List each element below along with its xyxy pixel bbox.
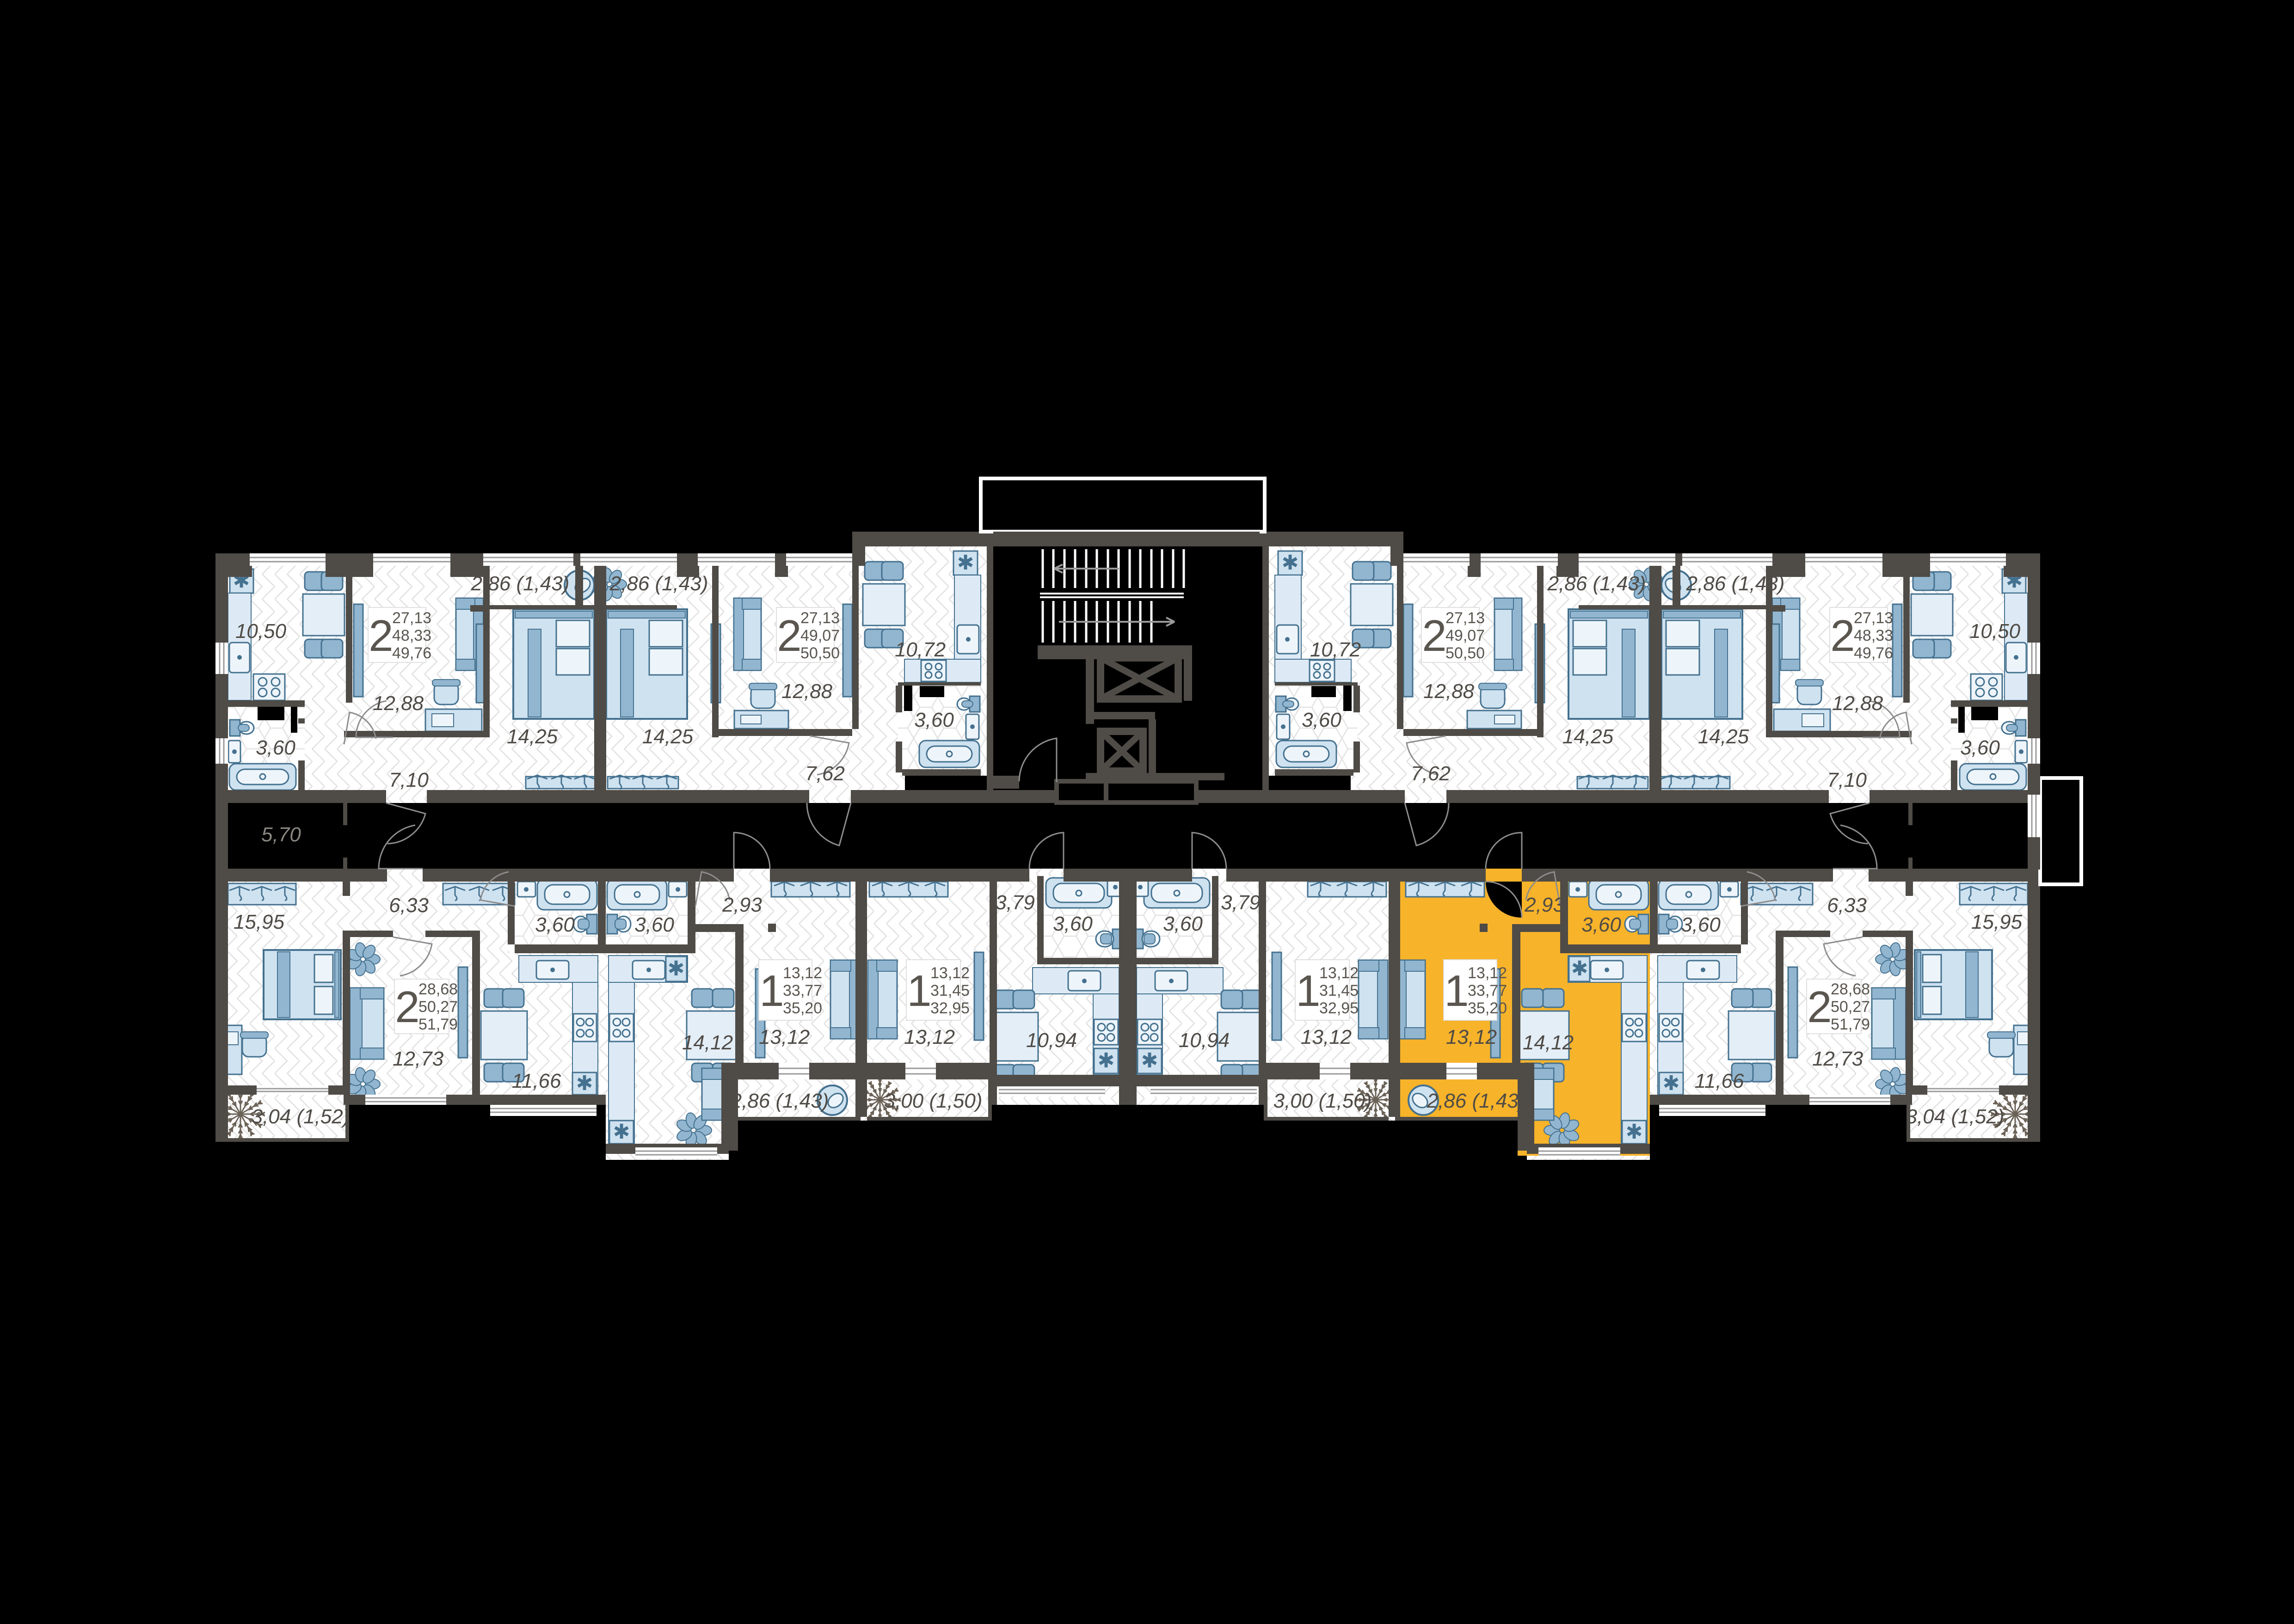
svg-text:2,86 (1,43): 2,86 (1,43) xyxy=(1547,572,1646,595)
svg-text:27,13: 27,13 xyxy=(800,609,840,627)
svg-text:27,13: 27,13 xyxy=(1854,609,1893,627)
svg-text:28,68: 28,68 xyxy=(418,981,458,998)
svg-text:3,60: 3,60 xyxy=(256,736,295,759)
svg-text:✱: ✱ xyxy=(1282,552,1299,574)
svg-text:49,07: 49,07 xyxy=(1445,627,1485,644)
svg-text:35,20: 35,20 xyxy=(783,999,822,1017)
svg-text:48,33: 48,33 xyxy=(392,627,431,644)
svg-text:2,86 (1,43): 2,86 (1,43) xyxy=(1427,1090,1525,1112)
svg-text:50,27: 50,27 xyxy=(418,998,458,1016)
svg-text:51,79: 51,79 xyxy=(1831,1016,1870,1033)
svg-text:12,73: 12,73 xyxy=(393,1048,444,1070)
svg-text:3,60: 3,60 xyxy=(1302,709,1341,731)
svg-text:11,66: 11,66 xyxy=(1695,1070,1744,1092)
svg-text:3,79: 3,79 xyxy=(995,891,1035,914)
svg-text:13,12: 13,12 xyxy=(1319,964,1359,982)
svg-text:7,62: 7,62 xyxy=(1411,762,1451,785)
svg-text:51,79: 51,79 xyxy=(418,1016,458,1033)
svg-text:13,12: 13,12 xyxy=(759,1026,810,1048)
svg-text:2,86 (1,43): 2,86 (1,43) xyxy=(1686,572,1785,595)
svg-text:2,86 (1,43): 2,86 (1,43) xyxy=(730,1090,829,1112)
svg-text:✱: ✱ xyxy=(1098,1049,1115,1072)
svg-text:49,07: 49,07 xyxy=(800,627,840,644)
svg-text:48,33: 48,33 xyxy=(1854,627,1893,644)
svg-text:3,60: 3,60 xyxy=(535,913,575,936)
svg-text:✱: ✱ xyxy=(668,957,685,980)
svg-text:✱: ✱ xyxy=(1571,957,1588,980)
svg-text:15,95: 15,95 xyxy=(234,911,285,933)
svg-text:7,10: 7,10 xyxy=(1827,769,1867,791)
svg-text:3,60: 3,60 xyxy=(1681,913,1721,936)
svg-text:3,60: 3,60 xyxy=(1960,736,2000,759)
svg-text:3,60: 3,60 xyxy=(1053,913,1093,935)
svg-text:10,72: 10,72 xyxy=(1310,638,1361,661)
svg-text:✱: ✱ xyxy=(1626,1121,1643,1143)
svg-text:2: 2 xyxy=(395,982,419,1032)
svg-text:12,88: 12,88 xyxy=(1832,692,1883,715)
svg-text:14,12: 14,12 xyxy=(682,1031,733,1054)
svg-text:✱: ✱ xyxy=(1141,1049,1158,1072)
svg-text:✱: ✱ xyxy=(613,1121,630,1143)
svg-text:2: 2 xyxy=(1807,982,1832,1032)
svg-text:10,50: 10,50 xyxy=(1969,620,2021,643)
svg-text:2,86 (1,43): 2,86 (1,43) xyxy=(471,572,570,595)
svg-text:13,12: 13,12 xyxy=(1468,964,1507,982)
svg-text:13,12: 13,12 xyxy=(783,964,822,982)
svg-text:✱: ✱ xyxy=(1663,1072,1680,1095)
svg-text:12,88: 12,88 xyxy=(373,692,424,715)
svg-text:3,04 (1,52): 3,04 (1,52) xyxy=(252,1105,350,1128)
svg-text:31,45: 31,45 xyxy=(930,982,970,999)
svg-text:13,12: 13,12 xyxy=(1301,1026,1352,1048)
svg-text:14,25: 14,25 xyxy=(642,725,694,748)
svg-text:6,33: 6,33 xyxy=(389,894,429,917)
svg-text:50,50: 50,50 xyxy=(1445,644,1485,662)
svg-text:5,70: 5,70 xyxy=(261,823,301,846)
svg-text:7,62: 7,62 xyxy=(805,762,845,785)
svg-text:2: 2 xyxy=(369,611,393,661)
svg-text:32,95: 32,95 xyxy=(930,999,970,1017)
svg-text:3,00 (1,50): 3,00 (1,50) xyxy=(884,1090,983,1112)
svg-text:33,77: 33,77 xyxy=(783,982,822,999)
svg-text:11,66: 11,66 xyxy=(512,1070,561,1092)
svg-text:6,33: 6,33 xyxy=(1827,894,1867,917)
svg-text:2: 2 xyxy=(1830,611,1855,661)
svg-text:✱: ✱ xyxy=(957,552,974,574)
svg-text:10,94: 10,94 xyxy=(1026,1029,1077,1052)
svg-text:2,93: 2,93 xyxy=(722,894,762,916)
svg-text:27,13: 27,13 xyxy=(1445,609,1485,627)
svg-text:12,88: 12,88 xyxy=(781,680,833,703)
svg-text:33,77: 33,77 xyxy=(1468,982,1507,999)
svg-text:3,04 (1,52): 3,04 (1,52) xyxy=(1906,1105,2005,1128)
svg-text:31,45: 31,45 xyxy=(1319,982,1359,999)
svg-text:1: 1 xyxy=(1444,966,1469,1016)
svg-text:27,13: 27,13 xyxy=(392,609,431,627)
svg-text:2,93: 2,93 xyxy=(1524,894,1564,916)
svg-text:50,27: 50,27 xyxy=(1831,998,1870,1016)
svg-text:2: 2 xyxy=(1422,611,1446,661)
svg-text:14,12: 14,12 xyxy=(1523,1031,1574,1054)
svg-text:2,86 (1,43): 2,86 (1,43) xyxy=(609,572,708,595)
svg-text:14,25: 14,25 xyxy=(1698,725,1749,748)
svg-text:1: 1 xyxy=(759,966,784,1016)
svg-text:3,60: 3,60 xyxy=(1581,913,1621,936)
svg-text:13,12: 13,12 xyxy=(930,964,970,982)
svg-text:32,95: 32,95 xyxy=(1319,999,1359,1017)
svg-text:50,50: 50,50 xyxy=(800,644,840,662)
svg-text:10,94: 10,94 xyxy=(1179,1029,1230,1052)
svg-text:12,88: 12,88 xyxy=(1423,680,1475,703)
svg-text:12,73: 12,73 xyxy=(1812,1048,1863,1070)
svg-text:10,72: 10,72 xyxy=(895,638,946,661)
svg-text:1: 1 xyxy=(907,966,931,1016)
svg-text:28,68: 28,68 xyxy=(1831,981,1870,998)
svg-text:7,10: 7,10 xyxy=(389,769,429,791)
svg-text:14,25: 14,25 xyxy=(507,725,558,748)
svg-text:49,76: 49,76 xyxy=(392,644,431,662)
svg-text:3,79: 3,79 xyxy=(1221,891,1261,914)
svg-text:3,60: 3,60 xyxy=(914,709,954,731)
svg-text:13,12: 13,12 xyxy=(1446,1026,1497,1048)
svg-text:2: 2 xyxy=(777,611,801,661)
svg-text:13,12: 13,12 xyxy=(904,1026,955,1048)
svg-text:✱: ✱ xyxy=(576,1072,593,1095)
svg-text:10,50: 10,50 xyxy=(235,620,287,643)
svg-text:3,60: 3,60 xyxy=(1163,913,1203,935)
svg-text:3,00 (1,50): 3,00 (1,50) xyxy=(1273,1090,1372,1112)
svg-text:1: 1 xyxy=(1296,966,1320,1016)
svg-text:3,60: 3,60 xyxy=(634,913,674,936)
svg-text:49,76: 49,76 xyxy=(1854,644,1893,662)
svg-text:15,95: 15,95 xyxy=(1971,911,2023,933)
svg-text:14,25: 14,25 xyxy=(1562,725,1614,748)
svg-text:35,20: 35,20 xyxy=(1468,999,1507,1017)
